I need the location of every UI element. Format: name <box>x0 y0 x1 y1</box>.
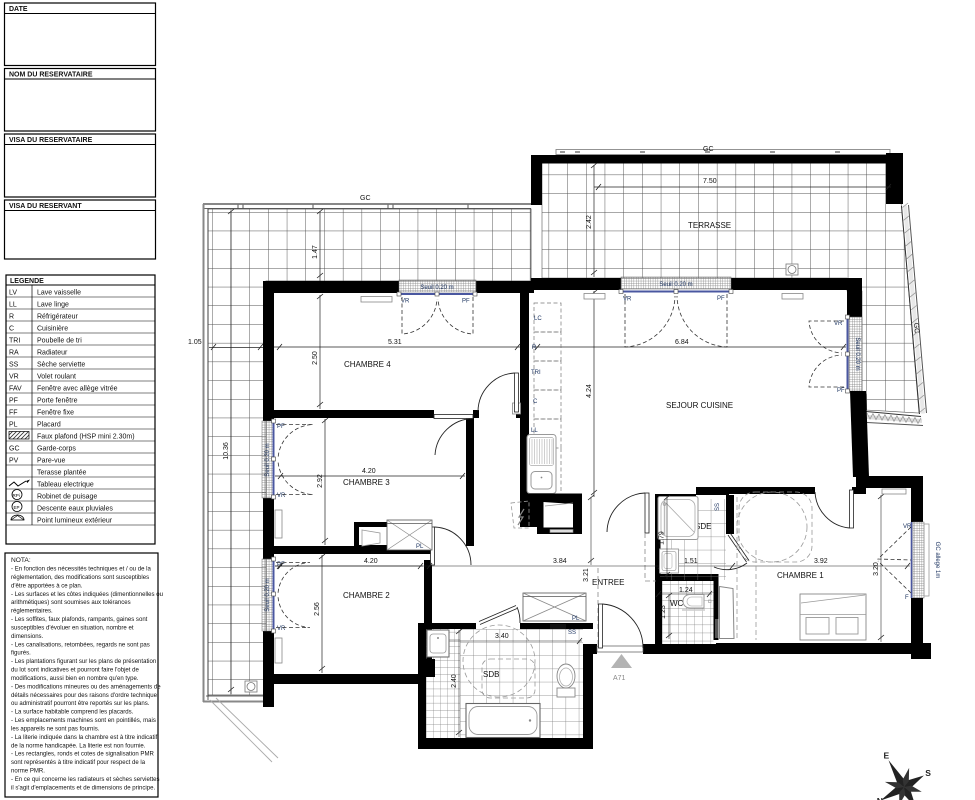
svg-text:- Des modifications mineures o: - Des modifications mineures ou des amén… <box>11 684 161 690</box>
svg-text:C: C <box>533 399 538 405</box>
svg-text:détails nécessaires pour des r: détails nécessaires pour des raisons d'o… <box>11 693 158 699</box>
svg-text:ou administratif pourront être: ou administratif pourront être reportés … <box>11 701 150 707</box>
svg-text:Lave vaisselle: Lave vaisselle <box>37 290 81 297</box>
svg-text:- La literie indiquée dans la: - La literie indiquée dans la chambre es… <box>11 735 158 741</box>
svg-text:PF: PF <box>462 299 470 305</box>
svg-text:4.20: 4.20 <box>364 558 378 565</box>
svg-text:SS: SS <box>9 362 19 369</box>
svg-text:S: S <box>925 768 931 778</box>
svg-text:VR: VR <box>277 626 286 632</box>
svg-text:susceptibles d'évoluer en situ: susceptibles d'évoluer en situation, nom… <box>11 625 134 631</box>
svg-text:PF: PF <box>9 398 18 405</box>
svg-text:WC: WC <box>670 599 684 608</box>
svg-text:Seuil 0.20 m: Seuil 0.20 m <box>854 337 860 370</box>
svg-text:Robinet de puisage: Robinet de puisage <box>37 494 97 501</box>
svg-text:4.20: 4.20 <box>362 468 376 475</box>
svg-text:- Les emplacements machines so: - Les emplacements machines sont en poin… <box>11 718 156 724</box>
svg-text:1.05: 1.05 <box>188 339 202 346</box>
svg-text:- Les canalisations, retombées: - Les canalisations, retombées, regards … <box>11 642 150 648</box>
svg-text:FAV: FAV <box>9 386 22 393</box>
svg-text:SS: SS <box>715 503 721 511</box>
svg-text:6.84: 6.84 <box>675 339 689 346</box>
svg-text:LV: LV <box>9 290 17 297</box>
svg-text:norme PMR.: norme PMR. <box>11 769 45 775</box>
svg-text:Seuil 0.20 m: Seuil 0.20 m <box>265 443 271 476</box>
svg-text:- En fonction des nécessités t: - En fonction des nécessités techniques … <box>11 567 151 573</box>
svg-text:PL: PL <box>9 422 18 429</box>
svg-text:7.50: 7.50 <box>703 178 717 185</box>
svg-text:GC: GC <box>912 323 920 334</box>
svg-text:F: F <box>905 595 909 601</box>
svg-text:N: N <box>877 796 883 800</box>
svg-text:Point lumineux extérieur: Point lumineux extérieur <box>37 518 113 525</box>
svg-text:VR: VR <box>623 297 632 303</box>
svg-text:3.40: 3.40 <box>495 633 509 640</box>
svg-text:EP: EP <box>14 505 20 510</box>
svg-text:CHAMBRE 1: CHAMBRE 1 <box>777 571 824 580</box>
svg-text:R: R <box>532 345 537 351</box>
svg-text:10.36: 10.36 <box>223 442 230 460</box>
svg-text:Seuil 0.20 m: Seuil 0.20 m <box>265 578 271 611</box>
svg-text:NOM DU RESERVATAIRE: NOM DU RESERVATAIRE <box>9 72 93 79</box>
svg-text:2.42: 2.42 <box>586 215 593 229</box>
svg-text:Volet roulant: Volet roulant <box>37 374 76 381</box>
svg-text:arithmétiques) sont soumises a: arithmétiques) sont soumises aux toléran… <box>11 600 131 606</box>
svg-text:Poubelle de tri: Poubelle de tri <box>37 338 82 345</box>
svg-text:1.23: 1.23 <box>660 605 667 619</box>
svg-text:réglementaires.: réglementaires. <box>11 609 53 615</box>
svg-text:1.79: 1.79 <box>659 531 666 545</box>
svg-text:- Les rectangles, ronds et cot: - Les rectangles, ronds et cotes de sign… <box>11 752 154 758</box>
svg-text:C: C <box>9 326 14 333</box>
svg-text:Placard: Placard <box>37 422 61 429</box>
svg-text:FF: FF <box>9 410 18 417</box>
svg-text:CHAMBRE 4: CHAMBRE 4 <box>344 360 391 369</box>
svg-text:LL: LL <box>531 428 538 434</box>
svg-text:il s'agit d'emplacements et de: il s'agit d'emplacements et de dimension… <box>11 785 155 791</box>
svg-text:- La surface habitable compren: - La surface habitable comprend les plac… <box>11 710 134 716</box>
svg-text:3.84: 3.84 <box>553 558 567 565</box>
svg-text:LL: LL <box>9 302 17 309</box>
svg-text:SS: SS <box>568 630 576 636</box>
svg-text:PL: PL <box>572 616 580 622</box>
svg-text:Réfrigérateur: Réfrigérateur <box>37 314 79 321</box>
svg-text:Seuil 0.20 m: Seuil 0.20 m <box>659 282 692 288</box>
svg-text:Porte fenêtre: Porte fenêtre <box>37 398 78 405</box>
svg-text:2.56: 2.56 <box>314 602 321 616</box>
svg-text:TERRASSE: TERRASSE <box>688 221 731 230</box>
svg-text:Garde-corps: Garde-corps <box>37 446 76 453</box>
svg-text:d'être apportées à ce plan.: d'être apportées à ce plan. <box>11 583 83 589</box>
svg-text:Radiateur: Radiateur <box>37 350 68 357</box>
svg-text:3.92: 3.92 <box>814 558 828 565</box>
svg-text:modifications, aussi bien en n: modifications, aussi bien en nombre qu'e… <box>11 676 139 682</box>
svg-text:5.31: 5.31 <box>388 339 402 346</box>
svg-text:GC: GC <box>703 146 714 153</box>
svg-text:Fenêtre avec allège vitrée: Fenêtre avec allège vitrée <box>37 386 118 393</box>
svg-text:- Les plantations figurant sur: - Les plantations figurant sur les plans… <box>11 659 156 665</box>
svg-text:figurés.: figurés. <box>11 651 31 657</box>
svg-text:réglementation, des modificati: réglementation, des modifications sont s… <box>11 575 149 581</box>
svg-text:Cuisinière: Cuisinière <box>37 326 68 333</box>
svg-text:PL: PL <box>416 544 424 550</box>
svg-text:Descente eaux pluviales: Descente eaux pluviales <box>37 506 113 513</box>
svg-text:4.24: 4.24 <box>586 384 593 398</box>
svg-text:2.50: 2.50 <box>312 351 319 365</box>
svg-text:SDB: SDB <box>483 670 499 679</box>
svg-text:Lave linge: Lave linge <box>37 302 69 309</box>
svg-text:TRI: TRI <box>531 370 541 376</box>
svg-text:LEGENDE: LEGENDE <box>10 278 44 285</box>
svg-text:GC allege 1m: GC allege 1m <box>934 542 940 579</box>
svg-text:LC: LC <box>534 316 542 322</box>
svg-text:Pare-vue: Pare-vue <box>37 458 66 465</box>
svg-text:SEJOUR CUISINE: SEJOUR CUISINE <box>666 401 733 410</box>
svg-text:3.21: 3.21 <box>583 568 590 582</box>
svg-text:CHAMBRE 2: CHAMBRE 2 <box>343 591 390 600</box>
svg-text:1.24: 1.24 <box>679 587 693 594</box>
svg-text:PF: PF <box>837 388 845 394</box>
svg-text:dimensions.: dimensions. <box>11 634 44 640</box>
svg-text:RA: RA <box>9 350 19 357</box>
svg-text:TRI: TRI <box>9 338 20 345</box>
svg-text:DATE: DATE <box>9 6 28 13</box>
svg-text:E: E <box>884 751 890 761</box>
svg-text:NOTA:: NOTA: <box>11 557 31 564</box>
svg-text:du lot sont indicatives et pou: du lot sont indicatives et pourront fair… <box>11 668 140 674</box>
svg-text:Seuil 0.20 m: Seuil 0.20 m <box>420 285 453 291</box>
svg-text:Faux plafond (HSP mini 2.30m): Faux plafond (HSP mini 2.30m) <box>37 434 135 441</box>
svg-text:de la norme handicapée. La lit: de la norme handicapée. La literie est n… <box>11 743 146 749</box>
svg-text:2.92: 2.92 <box>317 474 324 488</box>
svg-text:les appareils ne sont pas four: les appareils ne sont pas fournis. <box>11 727 100 733</box>
svg-text:Fenêtre fixe: Fenêtre fixe <box>37 410 74 417</box>
svg-text:PV: PV <box>9 458 19 465</box>
svg-text:GC: GC <box>360 195 371 202</box>
svg-text:- Les soffites, faux plafonds,: - Les soffites, faux plafonds, rampants,… <box>11 617 148 623</box>
svg-text:ENTREE: ENTREE <box>592 578 624 587</box>
svg-text:VR: VR <box>9 374 19 381</box>
svg-text:RPi: RPi <box>13 493 20 498</box>
svg-text:- Les surfaces et les côtes in: - Les surfaces et les côtes indiquées (d… <box>11 592 163 598</box>
svg-text:R: R <box>9 314 14 321</box>
svg-text:VISA DU RESERVANT: VISA DU RESERVANT <box>9 203 82 210</box>
svg-text:GC: GC <box>9 446 20 453</box>
svg-text:Tableau electrique: Tableau electrique <box>37 482 94 489</box>
svg-text:2.40: 2.40 <box>451 674 458 688</box>
svg-text:- En ce qui concerne les radia: - En ce qui concerne les radiateurs et s… <box>11 777 160 783</box>
svg-text:Terasse plantée: Terasse plantée <box>37 470 87 477</box>
svg-text:CHAMBRE 3: CHAMBRE 3 <box>343 478 390 487</box>
svg-text:1.47: 1.47 <box>312 245 319 259</box>
svg-text:PF: PF <box>717 296 725 302</box>
svg-text:sont représentés à titre indic: sont représentés à titre indicatif pour … <box>11 760 146 766</box>
svg-text:3.20: 3.20 <box>873 562 880 576</box>
svg-text:A71: A71 <box>613 675 626 682</box>
svg-text:VR: VR <box>277 493 286 499</box>
svg-text:VR: VR <box>834 321 843 327</box>
svg-text:Sèche serviette: Sèche serviette <box>37 362 85 369</box>
svg-text:VISA DU RESERVATAIRE: VISA DU RESERVATAIRE <box>9 137 93 144</box>
